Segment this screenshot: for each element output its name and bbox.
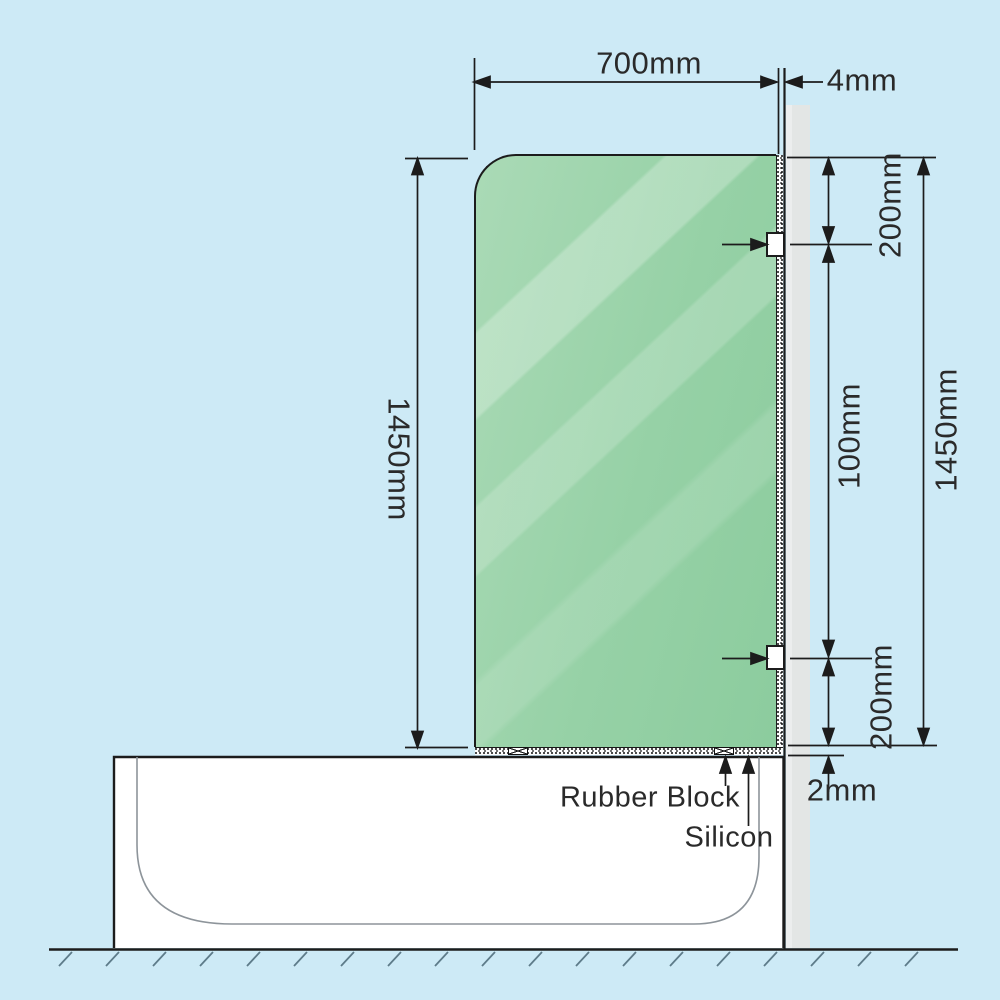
dim-1450mm-left-label: 1450mm — [384, 397, 415, 521]
dim-100mm-label: 100mm — [834, 383, 865, 489]
silicon-label: Silicon — [685, 824, 774, 853]
ground-hatching — [59, 952, 918, 966]
dim-200mm-bottom-line — [823, 660, 834, 745]
mounting-bracket-bottom — [766, 645, 785, 670]
glass-panel — [474, 154, 776, 747]
rubber-block-marker — [508, 747, 528, 755]
dim-1450mm-right-label: 1450mm — [931, 368, 962, 492]
rubber-block-label: Rubber Block — [560, 784, 740, 813]
wall — [786, 105, 810, 948]
dim-700mm-label: 700mm — [596, 48, 702, 79]
dim-2mm-label: 2mm — [807, 775, 877, 806]
bathroom-screen-diagram: 700mm 4mm 1450mm 200mm 100mm 1450mm 200m… — [0, 0, 1000, 1000]
dim-200mm-top-line — [823, 159, 834, 244]
dim-4mm-label: 4mm — [827, 65, 897, 96]
mounting-bracket-top — [766, 232, 785, 257]
dim-1450mm-right-line — [918, 159, 929, 745]
dim-4mm-line — [786, 77, 823, 88]
silicon-leader — [743, 757, 754, 826]
rubber-block-marker — [714, 747, 734, 755]
dim-200mm-top-label: 200mm — [875, 152, 906, 258]
dim-200mm-bottom-label: 200mm — [866, 644, 897, 750]
